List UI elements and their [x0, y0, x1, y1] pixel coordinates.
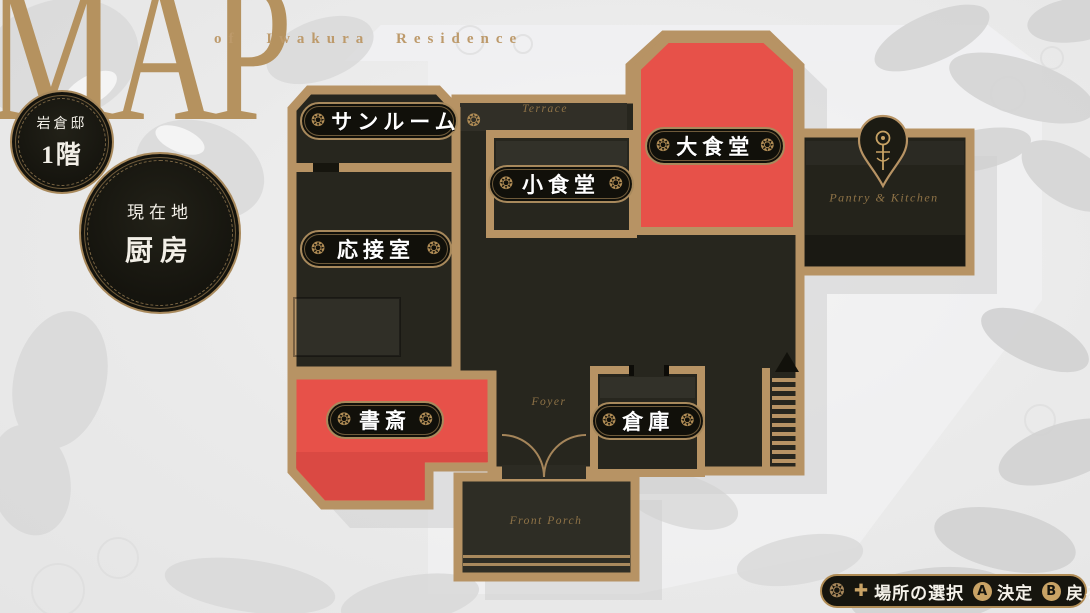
bar-end-ornament-icon: ❂	[829, 582, 845, 601]
room-label-sunroom[interactable]: ❂ サンルーム ❂	[300, 102, 458, 140]
room-label-small-dining[interactable]: ❂ 小食堂 ❂	[488, 165, 634, 203]
room-label-grand-dining[interactable]: ❂ 大食堂 ❂	[645, 127, 785, 165]
rosette-icon: ❂	[609, 176, 623, 193]
controls-bar: ❂ ✚ 場所の選択 A 決定 B 戻る ❂	[820, 574, 1087, 608]
b-button-icon: B	[1042, 582, 1061, 601]
rosette-icon: ❂	[602, 413, 616, 430]
rosette-icon: ❂	[311, 241, 325, 258]
rosette-icon: ❂	[427, 241, 441, 258]
back-label: 戻る	[1066, 579, 1090, 604]
front-porch-label: Front Porch	[510, 515, 583, 527]
map-subtitle: of Iwakura Residence	[214, 31, 523, 48]
map-screen: MAP of Iwakura Residence 岩倉邸 1階 現在地 厨房 ❂…	[0, 0, 1090, 613]
rosette-icon: ❂	[760, 138, 774, 155]
foyer-label: Foyer	[532, 396, 567, 408]
rosette-icon: ❂	[499, 176, 513, 193]
confirm-control[interactable]: A 決定	[973, 579, 1033, 604]
current-location-label: 現在地	[127, 198, 193, 223]
back-control[interactable]: B 戻る	[1042, 579, 1090, 604]
confirm-label: 決定	[997, 579, 1033, 604]
select-location-label: 場所の選択	[874, 579, 964, 604]
building-name: 岩倉邸	[37, 113, 88, 133]
dpad-icon: ✚	[854, 583, 869, 600]
current-location-value: 厨房	[125, 229, 195, 269]
room-label-study[interactable]: ❂ 書斎 ❂	[326, 401, 444, 439]
room-label-storage[interactable]: ❂ 倉庫 ❂	[591, 402, 705, 440]
rosette-icon: ❂	[680, 413, 694, 430]
pantry-kitchen-label: Pantry & Kitchen	[829, 191, 938, 206]
rosette-icon: ❂	[337, 412, 351, 429]
floor-number: 1階	[41, 135, 83, 171]
rosette-icon: ❂	[656, 138, 670, 155]
terrace-label: Terrace	[522, 103, 568, 115]
current-location-badge: 現在地 厨房	[79, 152, 241, 314]
a-button-icon: A	[973, 582, 992, 601]
select-location-control[interactable]: ✚ 場所の選択	[854, 579, 964, 604]
rosette-icon: ❂	[467, 113, 481, 130]
rosette-icon: ❂	[311, 113, 325, 130]
rosette-icon: ❂	[419, 412, 433, 429]
room-label-reception[interactable]: ❂ 応接室 ❂	[300, 230, 452, 268]
front-porch-shape	[458, 477, 635, 577]
